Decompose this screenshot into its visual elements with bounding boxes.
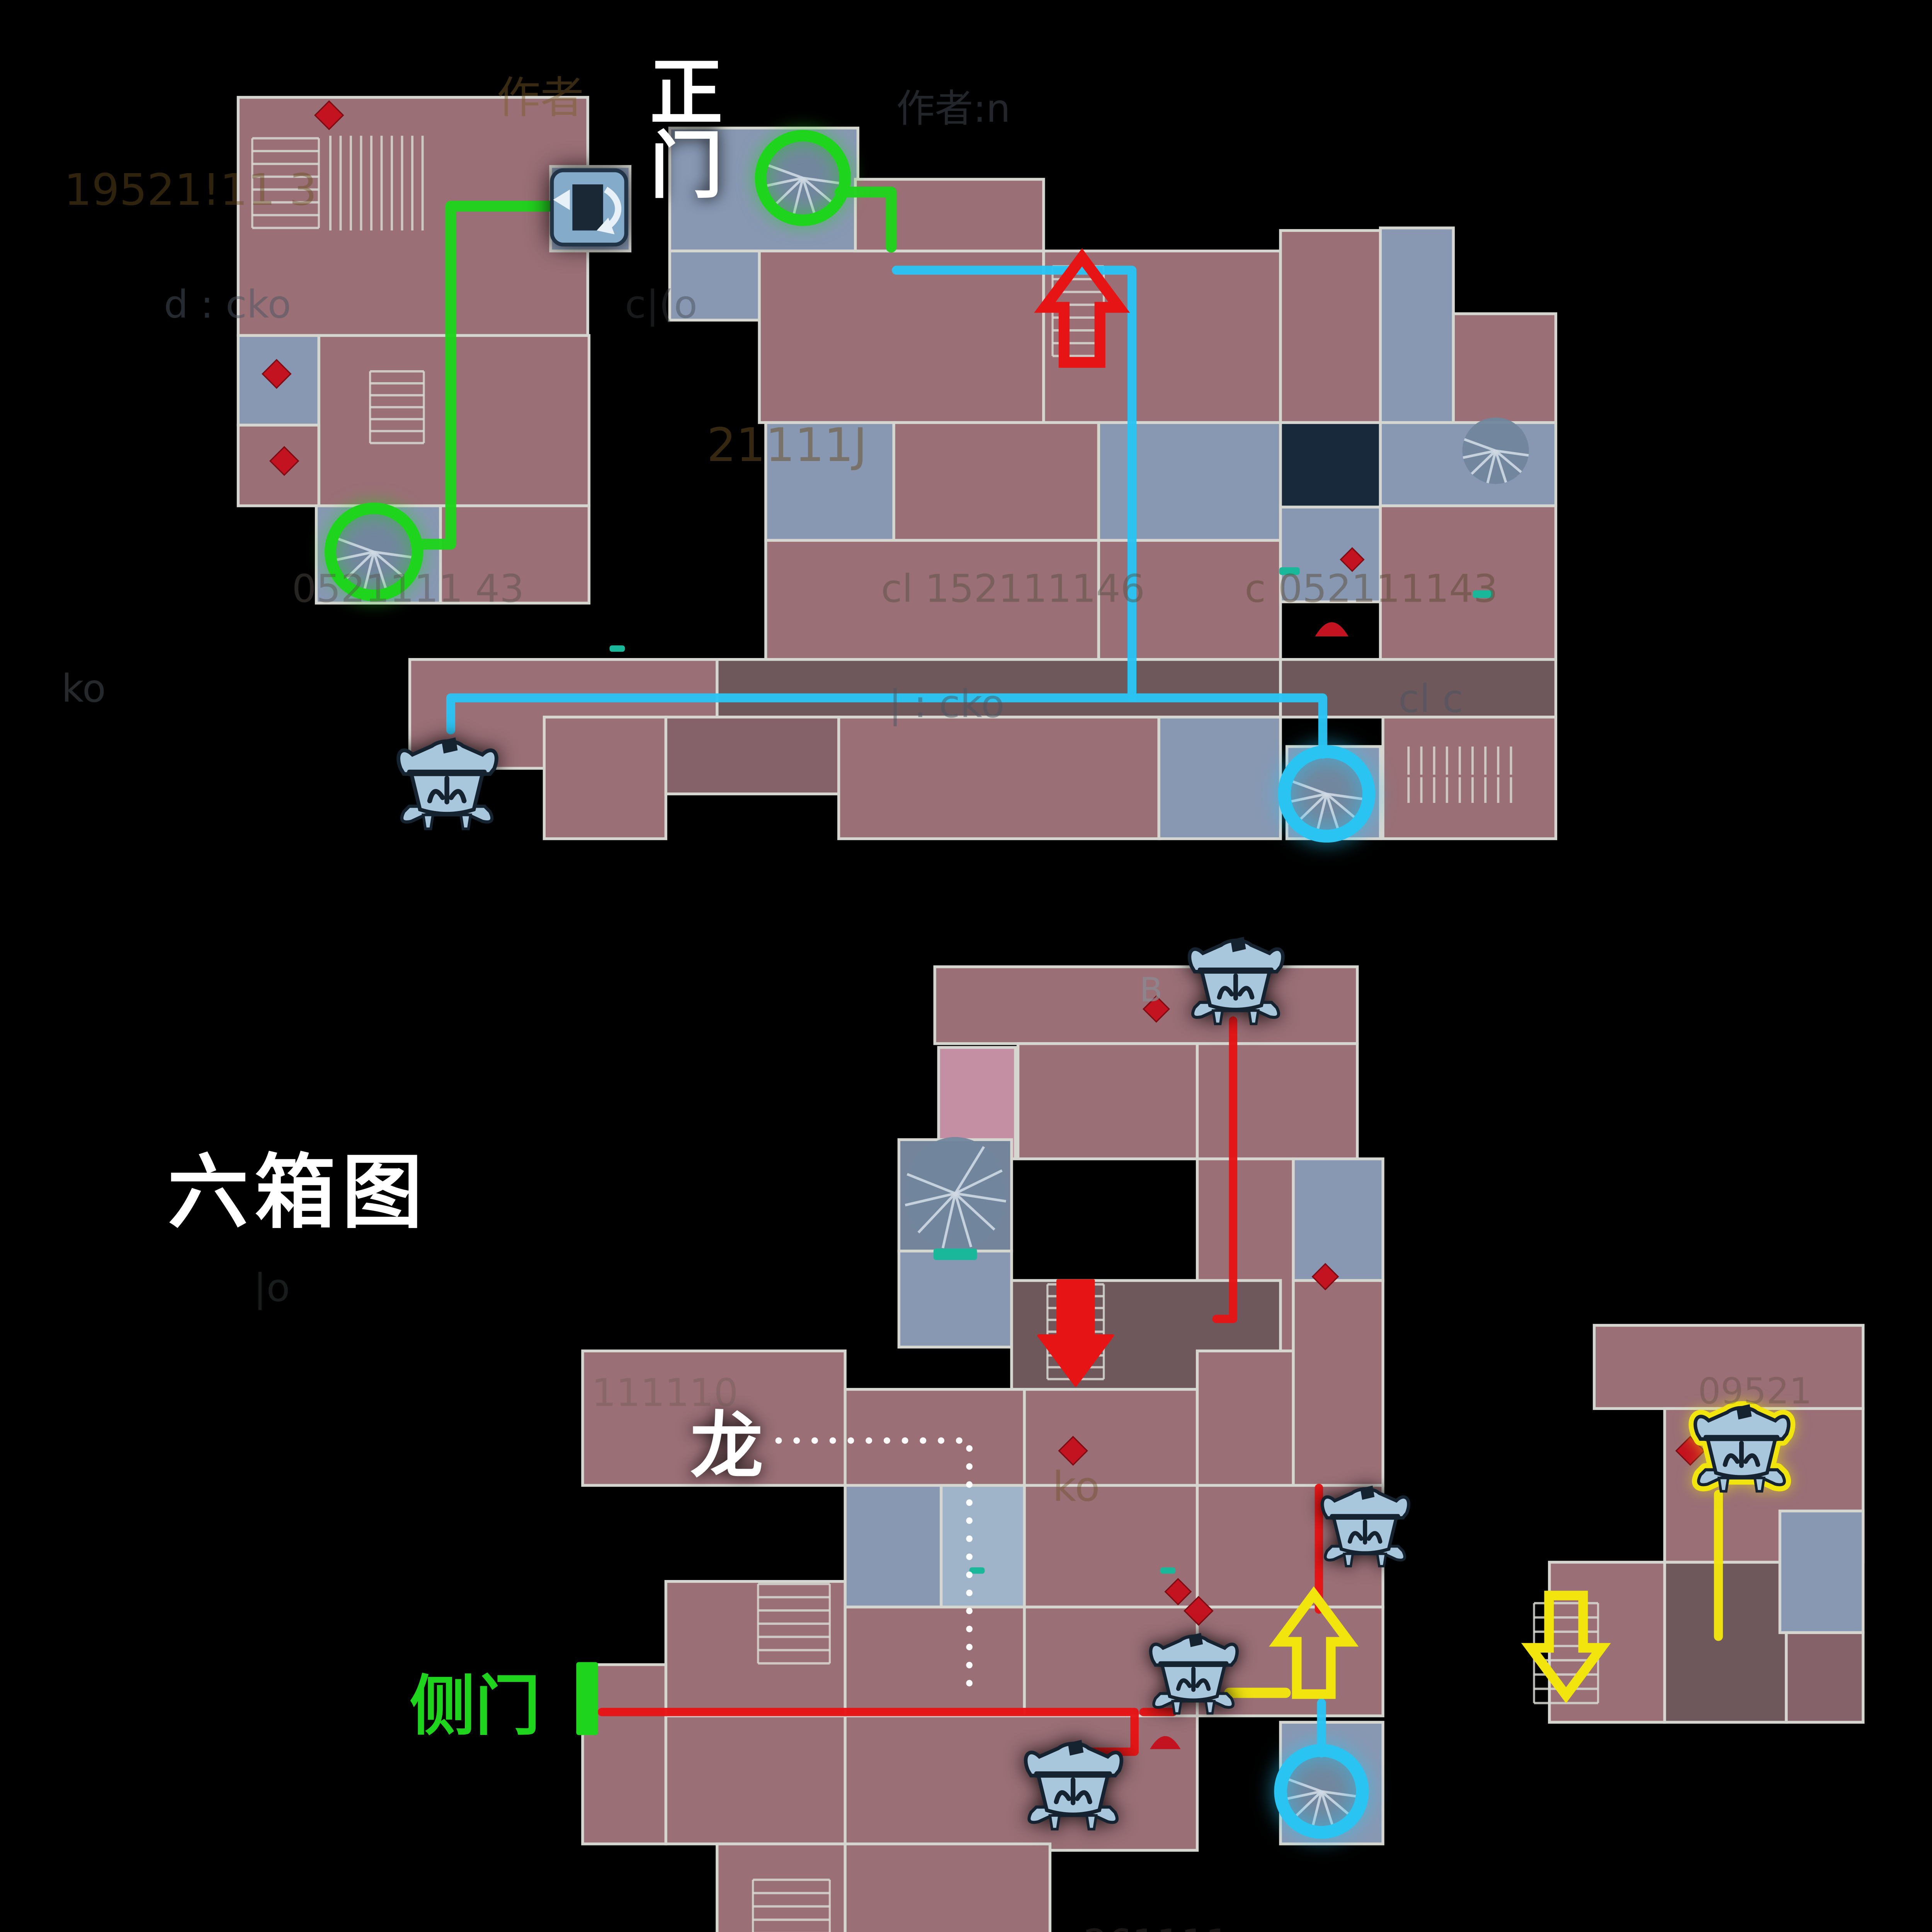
spiral-staircase — [1291, 758, 1362, 830]
room — [1044, 251, 1281, 423]
watermark-text: cl 152111146 — [881, 567, 1145, 611]
chest-band — [1704, 1435, 1779, 1441]
watermark-text: cl c — [1398, 677, 1464, 721]
room — [666, 1582, 845, 1716]
teal-door-marker — [1160, 1567, 1175, 1574]
label-dragon: 龙 — [690, 1404, 763, 1489]
chest-leg — [1050, 1815, 1059, 1829]
room — [839, 717, 1159, 839]
red-dome-marker — [1315, 622, 1348, 636]
watermark-text: 09521 — [1698, 1370, 1812, 1412]
teal-door-marker — [934, 1248, 977, 1260]
chest-leg — [1755, 1478, 1764, 1491]
lower-floor-map — [583, 967, 1863, 1932]
chest-band — [1198, 968, 1274, 974]
room — [1024, 1389, 1197, 1486]
chest-band — [407, 770, 487, 776]
spiral-staircase — [1287, 1757, 1356, 1826]
chest-leg — [1213, 1010, 1223, 1024]
watermark-text: 19521!11 3 — [64, 164, 317, 215]
room — [1293, 1159, 1383, 1281]
chest-leg — [1087, 1815, 1096, 1829]
room — [894, 423, 1099, 541]
room — [1159, 717, 1281, 839]
room — [845, 1844, 1050, 1932]
room — [1380, 228, 1453, 423]
room — [1099, 423, 1281, 541]
chest-band — [1330, 1514, 1400, 1520]
watermark-text: 111110 — [592, 1371, 738, 1415]
watermark-text: 261111 — [1083, 1922, 1230, 1932]
room — [845, 1607, 1024, 1716]
room — [1293, 1281, 1383, 1485]
watermark-text: ko — [1053, 1463, 1100, 1511]
room — [899, 1251, 1012, 1347]
chest-leg — [461, 815, 471, 829]
chest-band — [1158, 1661, 1228, 1667]
watermark-text: 作者 — [497, 72, 584, 123]
label-main-gate: 正门 — [638, 54, 723, 200]
chest-leg — [1378, 1554, 1386, 1566]
teal-door-marker — [609, 645, 625, 652]
room — [1197, 1351, 1294, 1485]
chest-leg — [423, 815, 433, 829]
room — [666, 1716, 845, 1844]
chest-icon-a — [1189, 937, 1283, 1024]
watermark-text: | : cko — [889, 682, 1005, 726]
room — [845, 1716, 1197, 1850]
chest-icon-e — [1695, 1404, 1789, 1491]
spiral-staircase — [1462, 417, 1529, 484]
chest-leg — [1173, 1701, 1181, 1713]
watermark-text: 作者:n — [896, 87, 1010, 131]
room — [845, 1485, 941, 1607]
room — [845, 1389, 1024, 1486]
gate-icon — [552, 170, 626, 245]
room — [759, 251, 1044, 423]
game-map-guide: 正门六箱图龙侧门作者作者:n19521!11 3d : ckoc|(o21111… — [0, 0, 1932, 1932]
chest-band — [1034, 1771, 1112, 1777]
chest-leg — [1206, 1701, 1214, 1713]
upper-floor-map — [238, 97, 1556, 839]
watermark-text: ko — [61, 667, 106, 711]
watermark-text: d : cko — [164, 282, 291, 327]
side-door-marker — [576, 1662, 598, 1735]
room — [1281, 423, 1380, 507]
watermark-text: 0521111 43 — [292, 567, 524, 611]
map-canvas: 正门六箱图龙侧门作者作者:n19521!11 3d : ckoc|(o21111… — [0, 0, 1932, 1932]
room — [941, 1485, 1024, 1607]
label-side-door: 侧门 — [410, 1668, 540, 1744]
room — [1018, 1044, 1197, 1159]
spiral-staircase — [904, 1137, 1007, 1250]
watermark-text: |o — [253, 1266, 290, 1310]
gate-icon-door — [572, 184, 603, 230]
chest-leg — [1249, 1010, 1258, 1024]
watermark-text: c 052111143 — [1245, 567, 1498, 611]
room — [1665, 1562, 1786, 1722]
room — [666, 717, 838, 794]
watermark-text: B — [1139, 971, 1162, 1009]
room — [1786, 1633, 1863, 1722]
label-six-chest-map: 六箱图 — [168, 1146, 429, 1240]
room — [544, 717, 666, 839]
chest-leg — [1344, 1554, 1353, 1566]
chest-leg — [1719, 1478, 1728, 1491]
watermark-text: 21111J — [707, 418, 867, 472]
room — [1197, 1044, 1357, 1159]
room — [1780, 1511, 1863, 1633]
watermark-text: c|(o — [625, 282, 697, 327]
